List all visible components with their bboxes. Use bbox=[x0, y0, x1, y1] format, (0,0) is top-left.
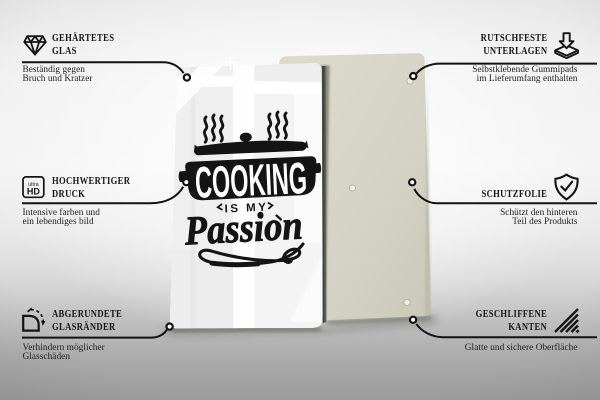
svg-text:HD: HD bbox=[27, 187, 40, 197]
svg-text:Passion: Passion bbox=[183, 201, 304, 253]
svg-text:COOKING: COOKING bbox=[194, 154, 308, 208]
